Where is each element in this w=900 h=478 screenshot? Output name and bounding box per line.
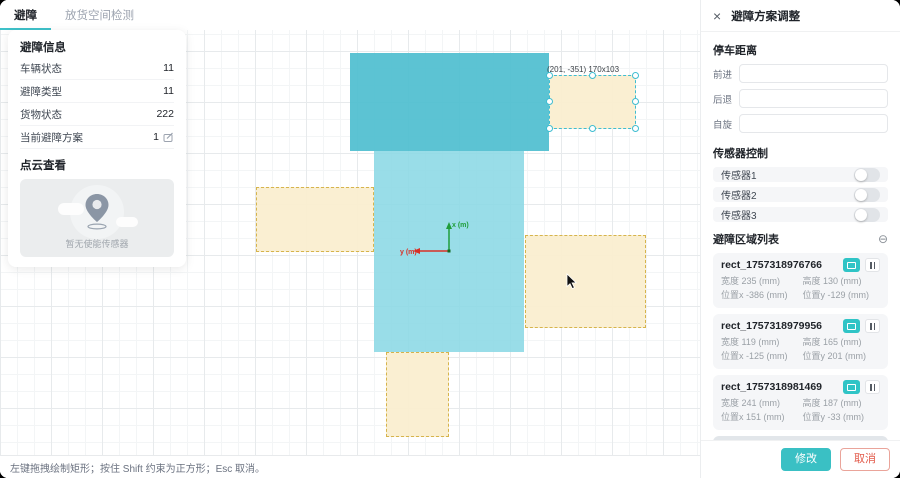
field-label: 前进 <box>713 67 739 81</box>
resize-handle-tl[interactable] <box>546 72 553 79</box>
row-value: 222 <box>156 108 174 120</box>
field-label: 后退 <box>713 92 739 106</box>
canvas-workspace: (201, -351) 170x103 x (m) y (m) 避障 放货空间检… <box>0 0 700 478</box>
area-name: rect_1757318979956 <box>721 320 822 332</box>
adjust-panel-title: 避障方案调整 <box>731 8 800 24</box>
area-card-3[interactable]: rect_1757318981469 宽度 241 (mm) 高度 187 (m… <box>713 375 888 430</box>
area-pause-icon[interactable] <box>865 258 880 272</box>
row-value: 1 <box>153 131 159 143</box>
adjust-panel-body: 停车距离 前进 后退 自旋 传感器控制 传感器1 传感器2 <box>701 32 900 440</box>
edit-plan-icon[interactable] <box>163 132 174 143</box>
origin-axes: x (m) y (m) <box>400 218 472 260</box>
sensor-1-toggle[interactable] <box>854 168 880 182</box>
resize-handle-ml[interactable] <box>546 98 553 105</box>
area-locate-icon[interactable] <box>843 380 860 394</box>
resize-handle-mr[interactable] <box>632 98 639 105</box>
tab-obstacle-avoidance[interactable]: 避障 <box>0 0 51 30</box>
toggle-knob <box>855 209 867 221</box>
resize-handle-br[interactable] <box>632 125 639 132</box>
adjust-panel: × 避障方案调整 停车距离 前进 后退 自旋 传感器控制 传感器1 <box>700 0 900 478</box>
avoid-zone-bottom[interactable] <box>386 352 449 437</box>
resize-handle-bm[interactable] <box>589 125 596 132</box>
area-pos-y: 位置y -129 (mm) <box>803 289 881 302</box>
area-pos-x: 位置x -125 (mm) <box>721 350 799 363</box>
field-row-forward: 前进 <box>713 64 888 83</box>
field-label: 自旋 <box>713 117 739 131</box>
pointcloud-empty-state: 暂无使能传感器 <box>20 179 174 257</box>
pointcloud-empty-text: 暂无使能传感器 <box>65 237 128 250</box>
row-label: 避障类型 <box>20 84 62 99</box>
resize-handle-tm[interactable] <box>589 72 596 79</box>
tab-bar: 避障 放货空间检测 <box>0 0 700 30</box>
row-value: 11 <box>163 85 174 97</box>
area-name: rect_1757318981469 <box>721 381 822 393</box>
sensor-label: 传感器1 <box>721 167 757 182</box>
rect-glyph <box>847 262 856 269</box>
status-bar-text: 左键拖拽绘制矩形；按住 Shift 约束为正方形；Esc 取消。 <box>10 460 265 475</box>
info-row-vehicle-status: 车辆状态 11 <box>20 57 174 80</box>
area-pause-icon[interactable] <box>865 319 880 333</box>
area-height: 高度 165 (mm) <box>803 336 881 349</box>
adjust-panel-header: × 避障方案调整 <box>701 0 900 32</box>
rect-glyph <box>847 323 856 330</box>
vehicle-region-top <box>350 53 549 151</box>
stop-distance-title: 停车距离 <box>713 42 888 58</box>
avoid-zone-left[interactable] <box>256 187 374 252</box>
area-list-title: 避障区域列表 <box>713 231 779 247</box>
area-height: 高度 130 (mm) <box>803 275 881 288</box>
area-pos-y: 位置y 201 (mm) <box>803 350 881 363</box>
area-locate-icon[interactable] <box>843 258 860 272</box>
area-pos-x: 位置x -386 (mm) <box>721 289 799 302</box>
info-row-cargo-status: 货物状态 222 <box>20 103 174 126</box>
info-panel-title: 避障信息 <box>20 39 174 55</box>
area-width: 宽度 119 (mm) <box>721 336 799 349</box>
app-window: (201, -351) 170x103 x (m) y (m) 避障 放货空间检… <box>0 0 900 478</box>
cloud-icon <box>116 217 138 227</box>
adjust-panel-footer: 修改 取消 <box>701 440 900 478</box>
row-label: 当前避障方案 <box>20 130 83 145</box>
avoid-zone-selected[interactable]: (201, -351) 170x103 <box>549 75 636 129</box>
area-name: rect_1757318976766 <box>721 259 822 271</box>
area-card-1[interactable]: rect_1757318976766 宽度 235 (mm) 高度 130 (m… <box>713 253 888 308</box>
area-card-2[interactable]: rect_1757318979956 宽度 119 (mm) 高度 165 (m… <box>713 314 888 369</box>
sensor-row-3: 传感器3 <box>713 207 888 222</box>
field-row-backward: 后退 <box>713 89 888 108</box>
sensor-control-title: 传感器控制 <box>713 145 888 161</box>
area-width: 宽度 241 (mm) <box>721 397 799 410</box>
area-pos-y: 位置y -33 (mm) <box>803 411 881 424</box>
rect-glyph <box>847 384 856 391</box>
sensor-pin-icon <box>80 190 114 234</box>
row-label: 货物状态 <box>20 107 62 122</box>
area-list-header: 避障区域列表 ⊖ <box>713 231 888 247</box>
axis-x-label: x (m) <box>452 222 469 229</box>
resize-handle-bl[interactable] <box>546 125 553 132</box>
axis-y-label: y (m) <box>400 249 417 256</box>
toggle-knob <box>855 169 867 181</box>
cancel-button[interactable]: 取消 <box>840 448 890 471</box>
rotation-distance-input[interactable] <box>739 114 888 133</box>
pointcloud-title: 点云查看 <box>20 157 174 173</box>
area-pause-icon[interactable] <box>865 380 880 394</box>
info-row-avoidance-type: 避障类型 11 <box>20 80 174 103</box>
modify-button[interactable]: 修改 <box>781 448 831 471</box>
backward-distance-input[interactable] <box>739 89 888 108</box>
tab-label: 避障 <box>14 7 37 23</box>
tab-cargo-space-detection[interactable]: 放货空间检测 <box>51 0 148 30</box>
close-icon[interactable]: × <box>713 9 721 23</box>
info-row-current-plan: 当前避障方案 1 <box>20 126 174 149</box>
collapse-icon[interactable]: ⊖ <box>878 233 888 245</box>
sensor-label: 传感器2 <box>721 187 757 202</box>
toggle-knob <box>855 189 867 201</box>
area-pos-x: 位置x 151 (mm) <box>721 411 799 424</box>
info-panel: 避障信息 车辆状态 11 避障类型 11 货物状态 222 当前避障方案 1 <box>8 30 186 267</box>
sensor-row-1: 传感器1 <box>713 167 888 182</box>
resize-handle-tr[interactable] <box>632 72 639 79</box>
avoid-zone-right[interactable] <box>525 235 646 328</box>
tab-label: 放货空间检测 <box>65 7 134 23</box>
sensor-3-toggle[interactable] <box>854 208 880 222</box>
sensor-row-2: 传感器2 <box>713 187 888 202</box>
area-locate-icon[interactable] <box>843 319 860 333</box>
area-height: 高度 187 (mm) <box>803 397 881 410</box>
row-value: 11 <box>163 62 174 74</box>
area-width: 宽度 235 (mm) <box>721 275 799 288</box>
status-bar: 左键拖拽绘制矩形；按住 Shift 约束为正方形；Esc 取消。 <box>0 455 700 478</box>
field-row-rotation: 自旋 <box>713 114 888 133</box>
mouse-cursor <box>566 273 578 290</box>
selected-zone-label: (201, -351) 170x103 <box>547 65 619 74</box>
forward-distance-input[interactable] <box>739 64 888 83</box>
row-label: 车辆状态 <box>20 61 62 76</box>
sensor-label: 传感器3 <box>721 207 757 222</box>
sensor-2-toggle[interactable] <box>854 188 880 202</box>
